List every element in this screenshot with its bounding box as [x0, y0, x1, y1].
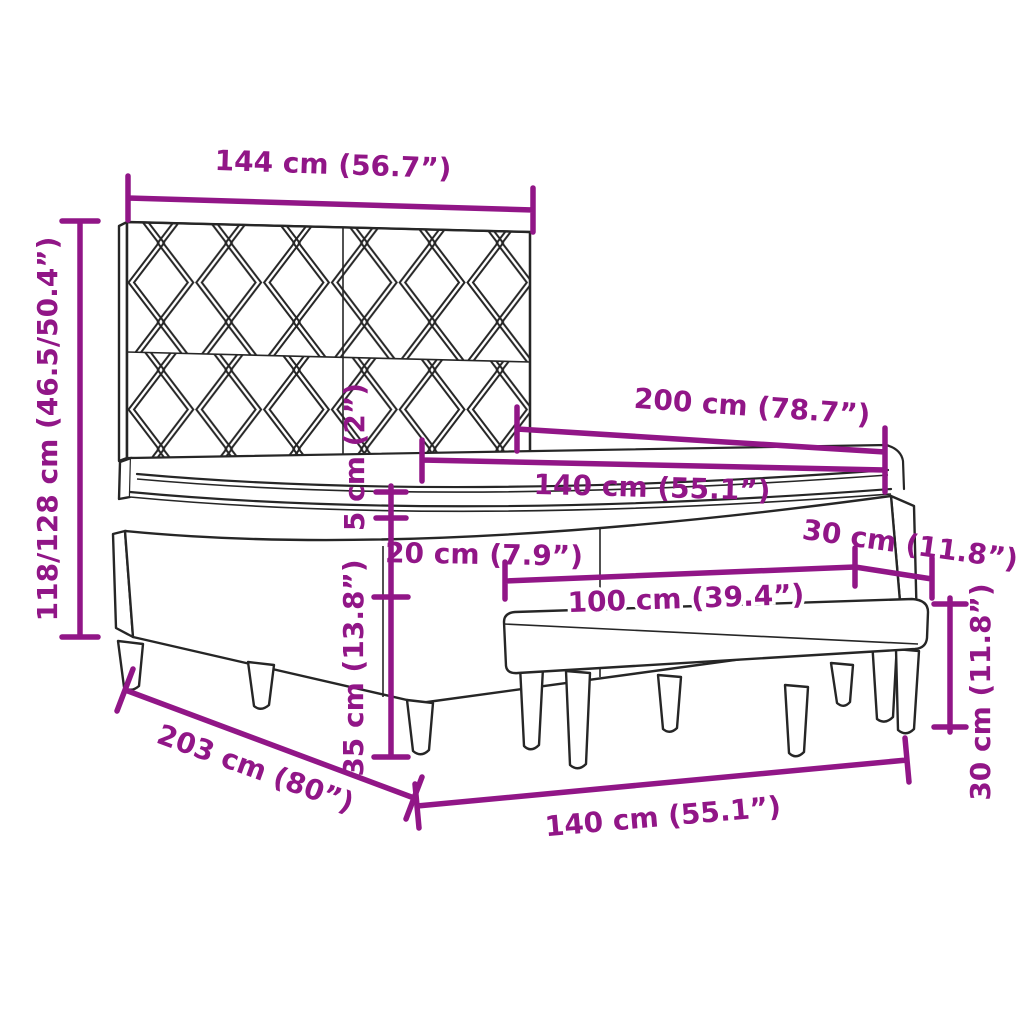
bench-leg [896, 649, 919, 733]
bench-leg [566, 671, 590, 768]
bed-drawing [113, 222, 928, 768]
bed-width-label: 140 cm (55.1”) [543, 790, 782, 844]
bench-leg [520, 666, 543, 749]
dimension-overall-height: 118/128 cm (46.5/50.4”) [31, 221, 98, 637]
bench [504, 599, 928, 768]
bed-leg [248, 662, 274, 709]
bench-leg [831, 663, 853, 706]
mattress-thickness-label: 20 cm (7.9”) [385, 536, 583, 572]
dimension-bench-height: 30 cm (11.8”) [934, 583, 997, 800]
dimension-headboard-width: 144 cm (56.7”) [128, 144, 533, 232]
bed-depth-label: 203 cm (80”) [153, 718, 359, 820]
bed-dimension-diagram-page: 144 cm (56.7”) 118/128 cm (46.5/50.4”) 2… [0, 0, 1024, 1024]
headboard [119, 222, 530, 470]
bed-leg [407, 700, 433, 754]
bench-height-label: 30 cm (11.8”) [964, 583, 997, 800]
dimension-bed-width: 140 cm (55.1”) [415, 738, 909, 843]
topper-thickness-label: 5 cm (2”) [338, 383, 371, 531]
mattress-width-label: 140 cm (55.1”) [533, 468, 771, 507]
headboard-width-label: 144 cm (56.7”) [214, 144, 452, 185]
mattress-left-face [119, 458, 131, 499]
bed-length-label: 200 cm (78.7”) [633, 382, 872, 431]
base-height-label: 35 cm (13.8”) [337, 559, 370, 776]
bed-dimension-diagram: 144 cm (56.7”) 118/128 cm (46.5/50.4”) 2… [0, 0, 1024, 1024]
headboard-pattern-top [127, 222, 530, 362]
overall-height-label: 118/128 cm (46.5/50.4”) [31, 237, 64, 622]
bench-leg [658, 675, 681, 732]
bench-leg [785, 685, 808, 756]
